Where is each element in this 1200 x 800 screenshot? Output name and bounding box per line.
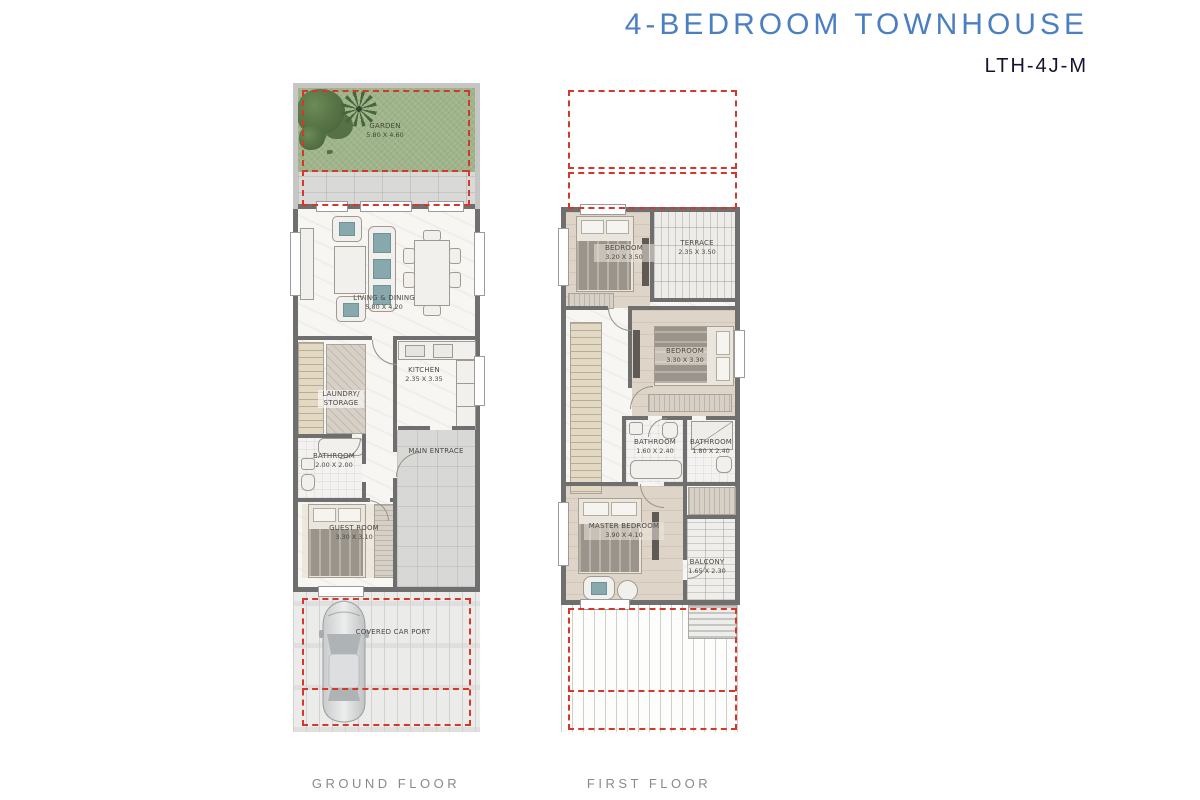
room-label-living-dining: LIVING & DINING 5.80 X 4.20 — [334, 294, 434, 312]
wall — [683, 482, 687, 560]
room-dims: 3.30 X 3.10 — [318, 533, 390, 541]
wall — [298, 498, 370, 502]
room-label-bathroom-1: BATHROOM 1.60 X 2.40 — [627, 438, 683, 456]
window-opening — [290, 232, 301, 296]
wall — [566, 306, 608, 310]
window-opening — [474, 232, 485, 296]
first-floor-open-plot-dashed — [568, 90, 737, 169]
sink — [629, 422, 643, 435]
header: 4-BEDROOM TOWNHOUSE LTH-4J-M — [625, 8, 1088, 78]
room-name: BEDROOM — [655, 347, 715, 356]
room-name: BALCONY — [679, 558, 735, 567]
room-dims: 3.90 X 4.10 — [584, 531, 664, 539]
dining-chair — [403, 272, 415, 288]
stove — [433, 344, 453, 358]
room-label-guest-room: GUEST ROOM 3.30 X 3.10 — [318, 524, 390, 542]
console-table — [300, 228, 314, 300]
wall — [398, 426, 430, 430]
wall — [650, 298, 735, 302]
wardrobe — [648, 394, 732, 412]
room-label-bathroom-2: BATHROOM 1.80 X 2.40 — [684, 438, 738, 456]
room-dims: 3.20 X 3.50 — [594, 253, 654, 261]
first-floor-caption: FIRST FLOOR — [549, 776, 749, 791]
roof-dashed-divider — [568, 690, 735, 692]
wall — [664, 482, 735, 486]
window-opening — [318, 586, 364, 597]
dining-chair — [403, 248, 415, 264]
toilet — [716, 456, 732, 473]
wall — [628, 306, 735, 310]
garden-wall-right — [475, 83, 480, 209]
toilet — [301, 474, 315, 491]
wardrobe — [688, 487, 736, 515]
room-dims: 2.00 X 2.00 — [306, 461, 362, 469]
room-label-master-bedroom: MASTER BEDROOM 3.90 X 4.10 — [584, 522, 664, 540]
wall — [362, 434, 366, 464]
laundry-floor — [326, 344, 366, 434]
kitchen-counter — [398, 341, 476, 360]
floor-plan-page: 4-BEDROOM TOWNHOUSE LTH-4J-M GARDEN 5.80… — [0, 0, 1200, 800]
room-label-bedroom-2: BEDROOM 3.30 X 3.30 — [655, 347, 715, 365]
dining-chair — [449, 272, 461, 288]
room-name: BATHROOM — [684, 438, 738, 447]
room-name: BEDROOM — [594, 244, 654, 253]
wall — [706, 416, 735, 420]
page-title: 4-BEDROOM TOWNHOUSE — [625, 8, 1088, 42]
room-name: BATHROOM — [627, 438, 683, 447]
dining-chair — [449, 248, 461, 264]
window-opening — [558, 502, 569, 566]
room-label-bedroom-1: BEDROOM 3.20 X 3.50 — [594, 244, 654, 262]
room-name: LAUNDRY/ STORAGE — [318, 390, 364, 408]
room-label-balcony: BALCONY 1.65 X 2.30 — [679, 558, 735, 576]
kitchen-sink — [405, 345, 425, 357]
staircase — [570, 322, 602, 494]
room-name: MAIN ENTRACE — [398, 447, 474, 456]
wall — [298, 336, 372, 340]
first-floor-open-band-dashed — [568, 172, 737, 209]
room-dims: 1.80 X 2.40 — [684, 447, 738, 455]
room-name: BATHROOM — [306, 452, 362, 461]
roof-dashed-outline — [568, 608, 737, 730]
ground-floor-caption: GROUND FLOOR — [286, 776, 486, 791]
room-dims: 3.30 X 3.30 — [655, 356, 715, 364]
room-label-bathroom-ground: BATHROOM 2.00 X 2.00 — [306, 452, 362, 470]
room-label-terrace: TERRACE 2.35 X 3.50 — [667, 239, 727, 257]
room-dims: 1.65 X 2.30 — [679, 567, 735, 575]
wall — [396, 336, 475, 340]
bathtub — [630, 460, 682, 479]
wall — [686, 515, 735, 519]
wall — [452, 426, 475, 430]
wall — [566, 482, 638, 486]
room-label-kitchen: KITCHEN 2.35 X 3.35 — [390, 366, 458, 384]
window-opening — [558, 228, 569, 286]
room-name: GUEST ROOM — [318, 524, 390, 533]
room-name: KITCHEN — [390, 366, 458, 375]
garden-plot-dashed-outline — [302, 90, 470, 206]
garden-wall-top — [293, 83, 480, 88]
dining-chair — [423, 230, 441, 241]
room-name: MASTER BEDROOM — [584, 522, 664, 531]
coffee-table — [334, 246, 366, 294]
car-port-dashed-outline — [302, 598, 471, 726]
room-name: LIVING & DINING — [334, 294, 434, 303]
room-dims: 1.60 X 2.40 — [627, 447, 683, 455]
wall — [622, 416, 626, 482]
garden-dashed-divider — [302, 170, 468, 172]
room-label-main-entrance: MAIN ENTRACE — [398, 447, 474, 456]
wall — [683, 580, 687, 604]
armchair — [332, 216, 362, 242]
room-dims: 5.80 X 4.20 — [334, 303, 434, 311]
wall — [393, 478, 397, 588]
room-name: TERRACE — [667, 239, 727, 248]
model-code: LTH-4J-M — [625, 55, 1088, 78]
tv-console — [633, 330, 640, 378]
car-port-dashed-divider — [302, 688, 469, 690]
garden-wall-left — [293, 83, 298, 209]
window-opening — [474, 356, 485, 406]
window-opening — [734, 330, 745, 378]
room-dims: 2.35 X 3.35 — [390, 375, 458, 383]
room-dims: 2.35 X 3.50 — [667, 248, 727, 256]
wall — [390, 498, 397, 502]
kitchen-tall-units — [456, 360, 476, 430]
side-table — [617, 580, 638, 601]
room-label-laundry-storage: LAUNDRY/ STORAGE — [318, 390, 364, 408]
lounge-chair — [583, 576, 615, 600]
